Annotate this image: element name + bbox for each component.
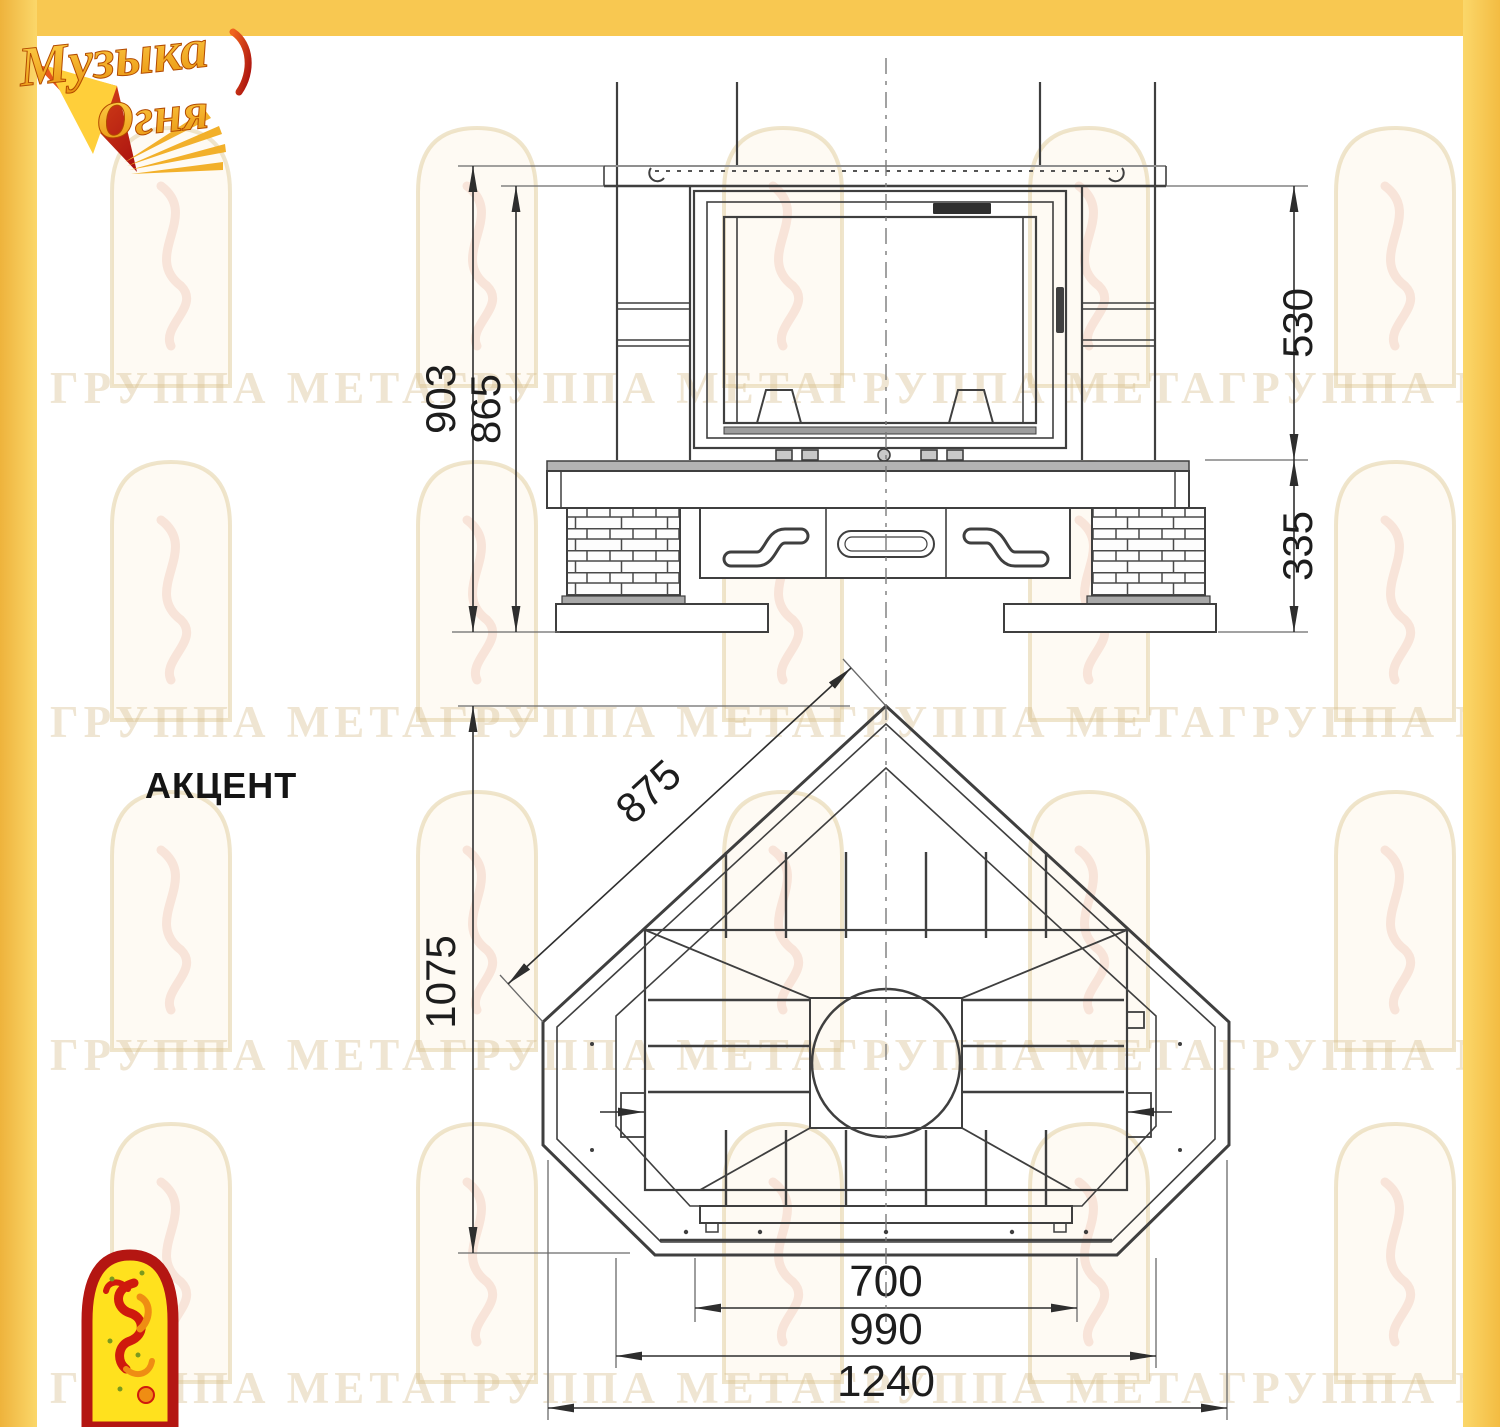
plinth-left [556,604,768,632]
dim-label-body-height: 865 [462,374,509,444]
side-tab-left [621,1093,645,1137]
dim-label-firebox-width: 700 [849,1257,922,1306]
hearth-shelf [547,461,1189,508]
dim-label-total-depth: 1075 [417,935,464,1028]
emblem-arch-logo [80,1243,180,1427]
logo-swoosh [233,32,248,92]
drawing-canvas: ГРУППА МЕТАГРУППА МЕТАГРУППА МЕТАГРУППА … [0,0,1500,1427]
brand-logo: Музыка Огня [5,2,275,187]
dim-label-side-depth: 875 [606,750,689,832]
brand-mark [933,203,991,214]
door-handle [1056,287,1064,333]
dim-label-total-width: 1240 [837,1357,935,1406]
dim-label-total-height: 903 [417,364,464,434]
dim-label-body-width: 990 [849,1305,922,1354]
plinth-right [1004,604,1216,632]
vent-knobs [776,449,963,461]
page: ГРУППА МЕТАГРУППА МЕТАГРУППА МЕТАГРУППА … [0,0,1500,1427]
anchor-curl-left [649,168,664,181]
side-tab-right [1127,1093,1151,1137]
frame-band-right [1463,0,1500,1427]
dim-label-base-height: 335 [1274,511,1321,581]
logo-word-2: Огня [94,83,212,151]
watermark-text-row: ГРУППА МЕТАГРУППА МЕТАГРУППА МЕТАГРУППА … [50,363,1500,413]
brick-pedestal-right [1092,508,1205,596]
decor-panel [700,508,1070,578]
model-name-label: АКЦЕНТ [145,765,297,807]
watermark-text-row: ГРУППА МЕТАГРУППА МЕТАГРУППА МЕТАГРУППА … [50,1030,1500,1080]
brick-pedestal-left [567,508,680,596]
dim-label-firebox-height: 530 [1274,288,1321,358]
emblem-sun-dot [138,1387,154,1403]
front-view: 903 865 530 335 [417,82,1321,632]
watermark-text-row: ГРУППА МЕТАГРУППА МЕТАГРУППА МЕТАГРУППА … [50,1363,1500,1413]
frame-band-left [0,0,37,1427]
watermark-text-row: ГРУППА МЕТАГРУППА МЕТАГРУППА МЕТАГРУППА … [50,697,1500,747]
